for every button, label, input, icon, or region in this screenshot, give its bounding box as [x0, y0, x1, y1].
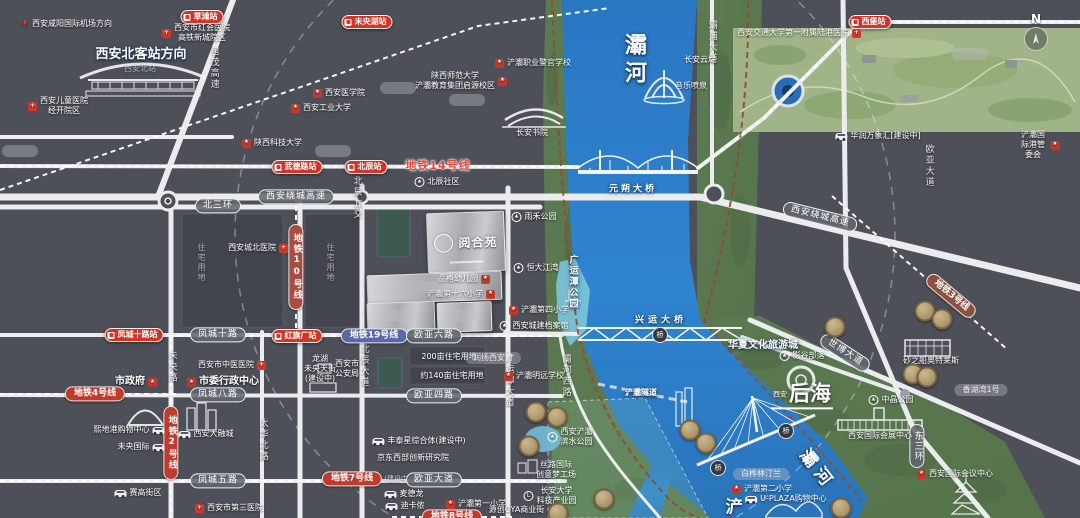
- road-fengcheng-8th: 凤城八路: [190, 387, 246, 402]
- gov-icon: ★: [917, 470, 926, 479]
- airport-direction: ✈西安咸阳国际机场方向: [20, 19, 112, 29]
- xian-medical-college: ★西安医学院: [313, 88, 365, 98]
- chanba-mingyuan-school: ★浐灞明远学校: [504, 371, 564, 381]
- ghost-xianghuwan-no1: 香湖湾1号: [954, 384, 1007, 396]
- metro-line-4: 地铁4号线: [65, 386, 125, 401]
- road-ouya-avenue: 欧亚大道: [406, 472, 462, 487]
- cross-icon: +: [279, 244, 288, 253]
- ring-icon: ▲: [780, 351, 790, 361]
- school-icon: ★: [495, 59, 504, 68]
- cross-icon: +: [257, 361, 266, 370]
- metro-mart: 麦德龙: [385, 489, 424, 499]
- behe-river-name-lower: 灞 河: [794, 446, 835, 491]
- yinggu-tribe: ▲影谷部落: [780, 351, 825, 361]
- xingyun-bridge-label: 兴运大桥: [635, 315, 687, 326]
- station-wudelu: 武德路站: [272, 160, 323, 174]
- ring-icon: ▲: [500, 321, 510, 331]
- school-icon: ★: [498, 77, 507, 86]
- xian-third-hospital: +西安市第三医院: [195, 503, 263, 513]
- car-icon: [835, 133, 847, 140]
- decathlon: 迪卡侬: [386, 501, 425, 511]
- xian-tcm-hospital: 西安市中医医院+: [198, 360, 266, 370]
- cross-icon: +: [852, 29, 861, 38]
- houhai-prefix: 西安: [773, 390, 787, 399]
- yuhe-park: ▲雨禾公园: [512, 212, 557, 222]
- chanba-police-vocational-school: ★浐灞职业警官学校: [495, 58, 571, 68]
- metro-icon: [108, 332, 115, 339]
- cross-icon: +: [162, 29, 171, 38]
- car-icon: [115, 490, 127, 497]
- road-shibo-avenue: 世博大道: [817, 331, 872, 374]
- school-icon: ★: [242, 139, 251, 148]
- L-icon: L: [524, 491, 534, 501]
- gold-medallion-icon-9: [548, 503, 569, 518]
- ghost-pill-5: [952, 48, 988, 60]
- ghost-pill-2: [449, 94, 485, 106]
- road-baomao-expwy: 包茂高速: [207, 46, 218, 90]
- changan-academy: 长安书院: [516, 128, 548, 138]
- bridge-badge-icon-1: 桥: [710, 460, 726, 476]
- station-caotan: 草滩站: [181, 10, 224, 24]
- road-fengcheng-5th: 凤城五路: [190, 473, 246, 488]
- school-icon: ★: [732, 485, 741, 494]
- chanba-2nd-primary-school: ★浐灞第二小学: [732, 484, 792, 494]
- metro-line-19: 地铁19号线(规划中): [341, 328, 408, 343]
- gold-medallion-icon-7: [519, 436, 540, 457]
- station-fengcheng-10th-rd: 凤城十路站: [105, 328, 164, 342]
- gov-icon: ★: [187, 378, 196, 387]
- gold-medallion-icon-10: [831, 498, 852, 518]
- station-beichen: 北辰站: [345, 160, 388, 174]
- chengbei-hospital: 西安城北医院+: [228, 243, 288, 253]
- hengda-jiangwan: ▲恒大江湾: [514, 263, 559, 273]
- plane-icon: ✈: [20, 20, 29, 29]
- public-security-bureau: 西安市 公安局: [335, 359, 359, 379]
- gold-medallion-icon-1: [932, 309, 953, 330]
- car-icon: [385, 491, 397, 498]
- school-icon: ★: [446, 500, 455, 509]
- ring-icon: ▲: [548, 432, 558, 442]
- road-raocheng-expwy-w: 西安绕城高速: [258, 189, 334, 204]
- metro-line-8: 地铁8号线: [422, 509, 482, 518]
- darongcheng-mall: 西安大融城: [179, 429, 234, 439]
- land-140mu: 约140亩住宅用地: [420, 371, 483, 381]
- station-weiyanghu: 未央湖站: [342, 15, 393, 29]
- school-icon: ★: [486, 290, 495, 299]
- map-labels-layer: 草滩站未央湖站西堡站武德路站北辰站凤城十路站红旗厂站地铁14号线地铁10号线地铁…: [0, 0, 1080, 518]
- houhai-label: 西安后海: [771, 380, 833, 409]
- cross-icon: +: [195, 504, 204, 513]
- chanba-tunnel-label: 浐灞隧道: [625, 388, 657, 398]
- cross-icon: +: [28, 102, 37, 111]
- bridge-badge-icon-0: 桥: [778, 423, 794, 439]
- metro-line-10: 地铁10号线: [288, 224, 303, 310]
- zhongjing-park: ▲中晶公园: [869, 395, 914, 405]
- honghui-hospital: +西安市红会医院 高铁新城院区: [162, 23, 230, 43]
- changan-univ-tech-park: L长安大学 科技产业园: [524, 486, 577, 506]
- gold-medallion-icon-2: [825, 317, 846, 338]
- chanba-4th-primary-school: ★浐灞第四小学: [509, 305, 569, 315]
- car-icon: [179, 431, 191, 438]
- ghost-pill-4: [2, 145, 38, 157]
- school-icon: ★: [481, 275, 490, 284]
- metro-icon: [275, 333, 282, 340]
- school-icon: ★: [509, 306, 518, 315]
- cityon-mall: 熙地港购物中心: [94, 425, 165, 435]
- shaanxi-sci-tech-univ: ★陕西科技大学: [242, 138, 302, 148]
- car-icon: [153, 444, 165, 451]
- metro-icon: [184, 14, 191, 21]
- ghost-pill-6: [415, 281, 451, 293]
- road-ouya-6th: 欧亚六路: [406, 328, 462, 343]
- municipal-admin-center: ★市委行政中心: [187, 376, 259, 389]
- changan-yundi: 长安云堤: [684, 55, 716, 65]
- gov-icon: ★: [148, 378, 157, 387]
- shaanxi-normal-univ-campus: 陕西师范大学 浐灞教育集团启源校区★: [415, 71, 507, 91]
- city-hall: 市政府★: [115, 376, 157, 389]
- chanba-binshui-park: ▲西安浐灞 滨水公园: [548, 427, 593, 447]
- silk-road-dream-works: 丝路国际 创意梦工场: [536, 460, 576, 480]
- ghost-pill-7: [382, 310, 418, 322]
- road-weiyang: 未央路: [165, 351, 176, 384]
- music-fountain: 音乐喷泉: [675, 81, 707, 91]
- jiaotong-univ-lugang-hospital: 西安交通大学第一附属陆港医院+: [737, 28, 861, 38]
- car-icon: [153, 427, 165, 434]
- metro-icon: [852, 19, 859, 26]
- intl-convention-exhibition-center: 西安国际会展中心: [848, 431, 912, 441]
- chanba-intl-port-committee: 浐灞国际港管委会★: [1019, 130, 1060, 160]
- beichen-community: ▲北辰社区: [415, 177, 460, 187]
- xian-urban-construction-archives: ▲西安城建档案馆: [500, 321, 569, 331]
- ghost-pill-1: [380, 82, 416, 94]
- compass-needle-icon: [1024, 27, 1048, 51]
- station-xibu: 西堡站: [849, 15, 892, 29]
- school-icon: ★: [313, 89, 322, 98]
- road-raocheng-expwy-e: 西安绕城高速: [781, 200, 858, 233]
- car-icon: [745, 496, 757, 503]
- beichen-interchange: 北辰立交: [350, 176, 361, 220]
- gold-medallion-icon-6: [547, 407, 568, 428]
- car-icon: [372, 438, 384, 445]
- ghost-pill-3: [315, 145, 351, 157]
- ghost-baihualin-tinglan: 白桦林汀兰: [733, 468, 789, 480]
- school-icon: ★: [504, 372, 513, 381]
- residential-land-left: 住宅用地: [196, 243, 206, 283]
- ghost-pill-8: [444, 310, 480, 322]
- road-ouya-4th: 欧亚四路: [406, 388, 462, 403]
- road-beichen-avenue: 北辰大道: [357, 344, 368, 388]
- north-station-direction: 西安北客站方向: [95, 47, 186, 63]
- saga-block: 赛高街区: [115, 488, 162, 498]
- yuanshuo-bridge-label: 元朔大桥: [609, 184, 657, 195]
- ring-icon: ▲: [415, 177, 425, 187]
- metro-line-7: 地铁7号线(建设中): [322, 471, 382, 486]
- road-taihua-north: 太华北路: [256, 418, 267, 462]
- ring-icon: ▲: [514, 263, 524, 273]
- bridge-badge-icon-2: 桥: [652, 327, 668, 343]
- fengtai-complex: 丰泰星综合体(建设中): [372, 436, 465, 446]
- longfor-weiyang-tianjie: 龙湖 未央天街 (建设中): [304, 354, 336, 384]
- gold-medallion-icon-8: [594, 489, 615, 510]
- chanhe-river-name: 浐: [726, 497, 743, 518]
- gold-medallion-icon-5: [526, 402, 547, 423]
- weiyang-international: 未央国际: [118, 442, 165, 452]
- children-hospital: +西安儿童医院 经开院区: [28, 96, 88, 116]
- jd-west-innovation-institute: 京东西部创新研究院: [377, 453, 449, 463]
- gold-medallion-icon-12: [696, 433, 717, 454]
- ring-icon: ▲: [869, 395, 879, 405]
- metro-icon: [348, 164, 355, 171]
- location-map[interactable]: 阅合苑 草滩站未央湖站西堡站武德路站北辰站凤城十路站红旗厂站地铁14号线地铁10…: [0, 0, 1080, 518]
- road-ouya-avenue-north: 欧亚大道: [922, 144, 933, 188]
- road-north-3rd-ring: 北三环: [195, 198, 241, 213]
- school-icon: ★: [291, 104, 300, 113]
- behe-river-name-upper: 灞 河: [625, 33, 647, 88]
- guangyuntan-park: 广运潭公园: [566, 255, 577, 310]
- residential-land-right: 住宅用地: [325, 243, 335, 283]
- road-fengcheng-10th: 凤城十路: [190, 327, 246, 342]
- uplaza-mall: U-PLAZA购物中心: [745, 494, 827, 504]
- station-hongqichang: 红旗厂站: [272, 329, 323, 343]
- mixc-mall: 华润万象汇[建设中]: [835, 131, 920, 141]
- car-icon: [386, 503, 398, 510]
- intl-conference-center: ★西安国际会议中心: [917, 469, 993, 479]
- gold-medallion-icon-4: [917, 367, 938, 388]
- metro-icon: [275, 164, 282, 171]
- compass: N: [1024, 12, 1048, 51]
- gov-icon: ★: [1051, 141, 1060, 150]
- metro-icon: [345, 19, 352, 26]
- metro-line-14: 地铁14号线: [405, 159, 470, 173]
- compass-north-label: N: [1024, 12, 1048, 26]
- ring-icon: ▲: [512, 212, 522, 222]
- metro-line-2: 地铁2号线: [163, 406, 178, 480]
- xian-technological-univ: ★西安工业大学: [291, 103, 351, 113]
- north-station-building-name: 西安北站: [124, 64, 156, 74]
- ghost-runyang-xianfu: 润扬西安府: [465, 352, 521, 364]
